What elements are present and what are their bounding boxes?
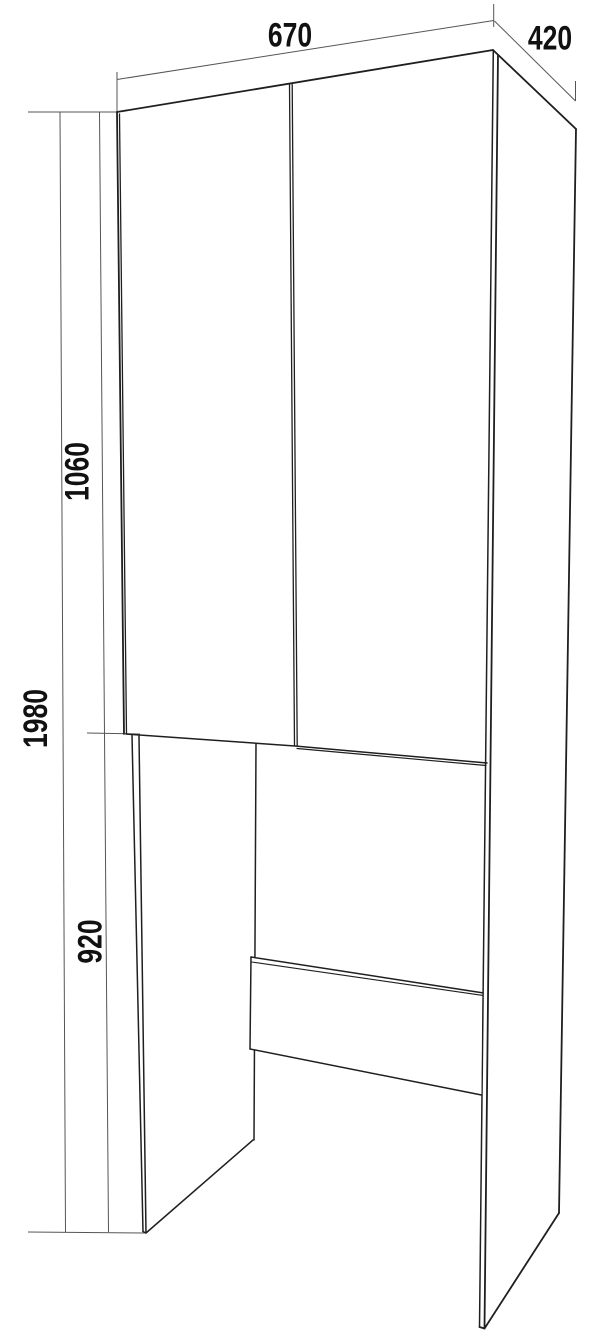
upper-height-dimension-label: 1060: [58, 442, 96, 501]
left-panel-inner-edge: [139, 736, 146, 1233]
width-dimension-label: 670: [268, 16, 312, 54]
door-bottom-edge: [126, 734, 487, 763]
left-panel-bottom-edge: [143, 1140, 253, 1233]
door-gap-left-line: [290, 84, 295, 746]
total-height-dimension-label: 1980: [17, 689, 55, 748]
niche-back-rail: [250, 957, 482, 1095]
niche-back-left-corner: [254, 744, 256, 1140]
right-panel-bottom-edge: [480, 1213, 560, 1329]
total-height-dimension-line: [60, 112, 66, 1232]
left-panel-outer-edge: [132, 736, 143, 1232]
height-tick-bottom: [28, 1232, 146, 1233]
door-gap-right-line: [292, 85, 297, 746]
rail-left-edge: [250, 957, 251, 1049]
niche-height-dimension-label: 920: [71, 919, 109, 963]
cabinet-technical-drawing: 670 420 1060 1980 920: [0, 0, 603, 1337]
top-front-edge: [117, 50, 493, 112]
cabinet-edges: [117, 50, 576, 1329]
right-back-edge: [559, 129, 576, 1213]
depth-dimension-label: 420: [528, 19, 572, 57]
cabinet-drawing-svg: 670 420 1060 1980 920: [0, 0, 603, 1337]
upper-cabinet-bottom-reveal: [297, 749, 486, 766]
upper-niche-height-dimension-line: [100, 112, 109, 1232]
